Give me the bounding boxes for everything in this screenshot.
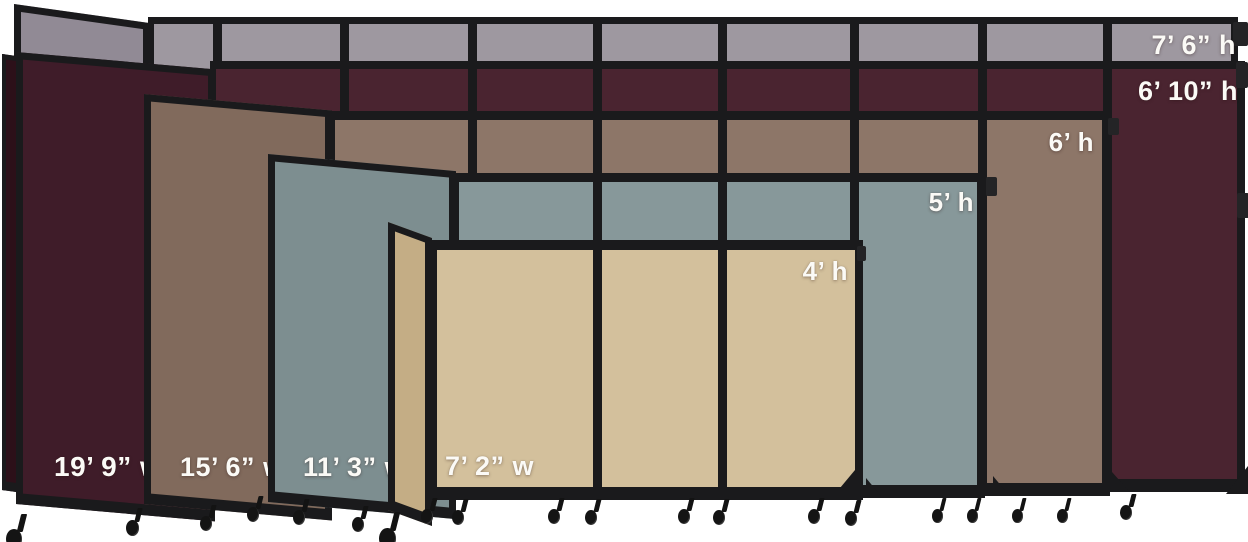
caster-tire [585,510,597,525]
caster-tire [845,511,857,526]
height-label-4ft-sand: 4’ h [598,258,848,285]
caster-tire [678,509,690,524]
caster-stem [593,499,601,512]
caster-wheel [452,499,467,525]
partition-4ft-sand: 4’ h7’ 2” w [0,0,1248,542]
caster-wheel [845,500,860,526]
partition-4ft-sand-side-return [388,222,432,526]
caster-stem [429,498,437,511]
caster-wheel [808,498,823,524]
caster-stem [853,500,861,513]
caster-wheel [379,512,400,542]
caster-tire [421,509,433,524]
caster-tire [713,510,725,525]
caster-stem [556,498,564,511]
frame-mullion [593,250,602,487]
caster-wheel [585,499,600,525]
caster-stem [390,512,401,531]
caster-tire [379,528,396,542]
caster-tire [548,509,560,524]
caster-wheel [548,498,563,524]
wall-bracket [857,246,866,261]
width-label-4ft-sand: 7’ 2” w [445,452,534,480]
caster-stem [460,499,468,512]
caster-wheel [678,498,693,524]
caster-stem [721,499,729,512]
room-divider-size-comparison-image: 7’ 6” h6’ 10” h19’ 9” w6’ h15’ 6” w5’ h1… [0,0,1248,542]
caster-stem [686,498,694,511]
caster-wheel [713,499,728,525]
caster-stem [816,498,824,511]
frame-mullion [718,250,727,487]
caster-tire [452,510,464,525]
caster-tire [808,509,820,524]
caster-wheel [421,498,436,524]
